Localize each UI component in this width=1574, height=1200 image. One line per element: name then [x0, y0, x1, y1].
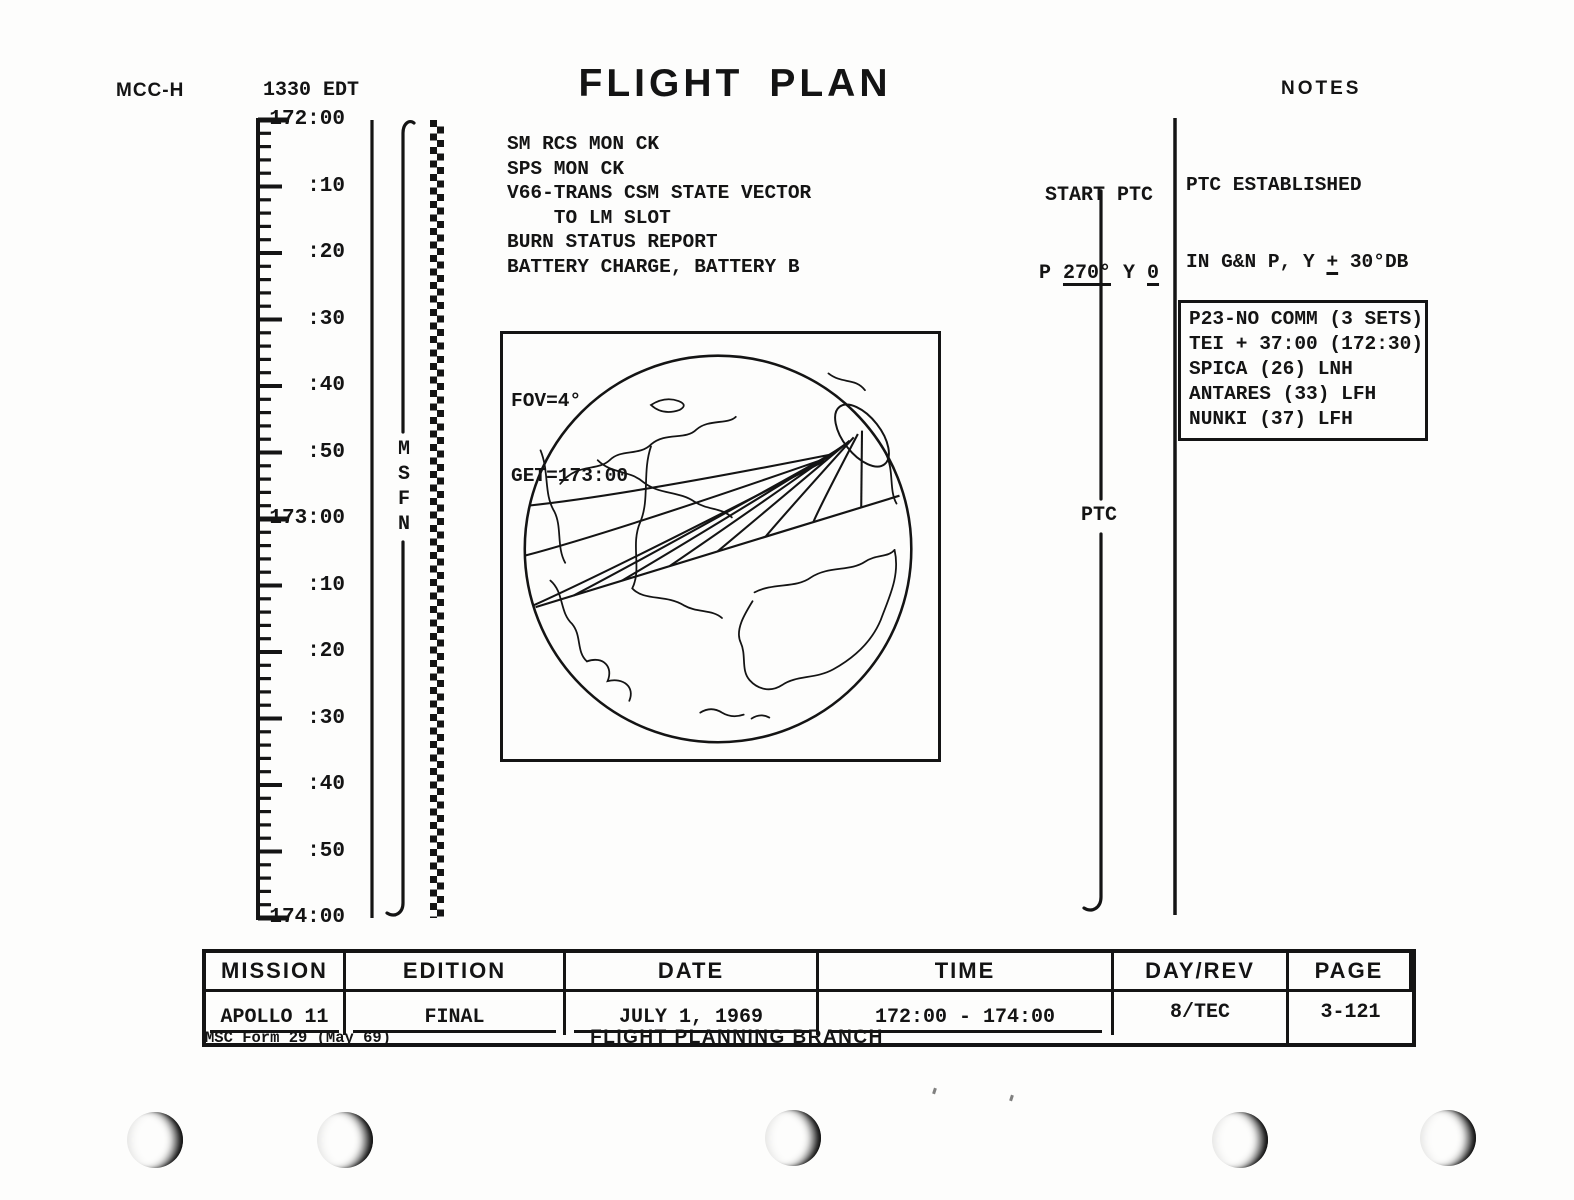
p23-note-box: P23-NO COMM (3 SETS)TEI + 37:00 (172:30)… — [1178, 300, 1428, 441]
task-line: SM RCS MON CK — [507, 132, 811, 157]
meridian-arc — [622, 447, 842, 580]
header-edition: EDITION — [346, 953, 566, 992]
p23-note-line: SPICA (26) LNH — [1189, 357, 1421, 382]
ptc-label: PTC — [1079, 503, 1119, 528]
small-sea — [651, 399, 684, 412]
scan-speck — [1009, 1095, 1014, 1102]
task-line: TO LM SLOT — [507, 206, 811, 231]
header-day-rev: DAY/REV — [1114, 953, 1289, 992]
p23-note-line: P23-NO COMM (3 SETS) — [1189, 307, 1421, 332]
note-line-1: PTC ESTABLISHED — [1186, 173, 1408, 199]
meridian-arc — [670, 444, 846, 566]
binder-hole — [1212, 1112, 1268, 1168]
p23-note-line: ANTARES (33) LFH — [1189, 382, 1421, 407]
globe-annotations: FOV=4° GET=173:00 — [511, 339, 628, 539]
meridian-arc — [813, 434, 858, 522]
time-tick-label: 172:00 — [269, 108, 345, 131]
branch-label: FLIGHT PLANNING BRANCH — [0, 1027, 1474, 1049]
yaw-value: 0 — [1147, 262, 1159, 285]
time-tick-label: :20 — [307, 640, 345, 663]
binder-hole — [317, 1112, 373, 1168]
time-tick-label: :30 — [307, 707, 345, 730]
msfn-label: MSFN — [392, 437, 416, 537]
p23-note-line: TEI + 37:00 (172:30) — [1189, 332, 1421, 357]
page-title-word2: PLAN — [769, 62, 891, 105]
task-line: BURN STATUS REPORT — [507, 230, 811, 255]
southern-islands — [700, 709, 769, 718]
time-tick-label: :50 — [307, 840, 345, 863]
south-africa-coast — [739, 550, 896, 689]
scan-speck — [932, 1088, 937, 1095]
earth-view-box: FOV=4° GET=173:00 — [500, 331, 941, 762]
time-tick-label: :40 — [307, 374, 345, 397]
time-tick-label: :40 — [307, 773, 345, 796]
start-ptc-annotation: START PTC P 270° Y 0 — [1034, 131, 1164, 339]
header-date: DATE — [566, 953, 819, 992]
task-line: V66-TRANS CSM STATE VECTOR — [507, 181, 811, 206]
time-tick-label: :20 — [307, 241, 345, 264]
msfn-letter: N — [392, 512, 416, 537]
pitch-value: 270° — [1063, 262, 1111, 285]
time-tick-label: 173:00 — [269, 507, 345, 530]
header-time: TIME — [819, 953, 1114, 992]
task-list: SM RCS MON CKSPS MON CKV66-TRANS CSM STA… — [507, 132, 811, 280]
p23-note-line: NUNKI (37) LFH — [1189, 407, 1421, 432]
meridian-arc — [861, 431, 862, 508]
start-ptc-title: START PTC — [1034, 183, 1164, 209]
time-tick-label: :30 — [307, 308, 345, 331]
notes-header: NOTES — [1281, 78, 1361, 100]
flight-plan-page: MCC-H 1330 EDT FLIGHTPLAN NOTES 172:00:1… — [0, 0, 1574, 1200]
start-ptc-attitude: P 270° Y 0 — [1034, 261, 1164, 287]
binder-hole — [1420, 1110, 1476, 1166]
header-mission: MISSION — [206, 953, 346, 992]
meridian-arc — [718, 441, 850, 552]
south-africa-north-edge — [755, 550, 895, 592]
binder-hole — [127, 1112, 183, 1168]
time-tick-label: :10 — [307, 175, 345, 198]
time-tick-label: :10 — [307, 574, 345, 597]
west-africa-coast — [632, 446, 722, 618]
page-title-word1: FLIGHT — [579, 62, 744, 105]
get-label: GET=173:00 — [511, 464, 628, 489]
time-tick-label: 174:00 — [269, 906, 345, 929]
time-tick-label: :50 — [307, 441, 345, 464]
msfn-letter: S — [392, 462, 416, 487]
binder-hole — [765, 1110, 821, 1166]
note-line-2: IN G&N P, Y + 30°DB — [1186, 250, 1408, 276]
south-america-south — [587, 660, 631, 701]
fov-label: FOV=4° — [511, 389, 628, 414]
task-line: SPS MON CK — [507, 157, 811, 182]
header-page: PAGE — [1289, 953, 1412, 992]
msfn-letter: F — [392, 487, 416, 512]
msfn-letter: M — [392, 437, 416, 462]
task-line: BATTERY CHARGE, BATTERY B — [507, 255, 811, 280]
page-title: FLIGHTPLAN — [0, 62, 1470, 106]
